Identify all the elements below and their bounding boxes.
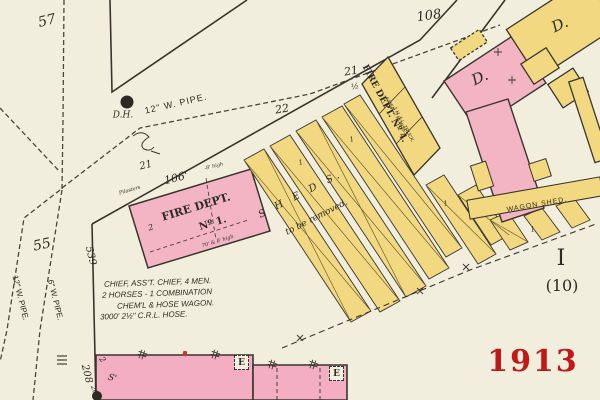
shed-story-mark: 1 — [530, 226, 536, 234]
street-number-21-sheds: 21 — [343, 64, 359, 77]
bottom-building-a — [96, 355, 253, 400]
valve-tick — [151, 151, 160, 154]
hydrant-dot — [121, 96, 134, 109]
block-number: (10) — [546, 278, 579, 294]
annex-strip — [569, 77, 600, 162]
street-number-22: 22 — [274, 102, 290, 115]
street-number-55: 55 — [32, 236, 52, 253]
block-roman: I — [557, 248, 566, 270]
hydrant-label: D.H. — [113, 112, 133, 121]
street-number-57: 57 — [37, 12, 58, 30]
shutter-e-label: E — [333, 369, 340, 379]
pipe-hash — [57, 356, 67, 364]
pipe-12in-south — [0, 190, 60, 362]
street-number-108: 108 — [416, 8, 442, 24]
map-year: 1913 — [487, 347, 579, 377]
sanborn-map-1913: 57 108 D.H. 12" W. PIPE. 21 106' Pilaste… — [0, 0, 600, 400]
pipe-branch-nw — [0, 108, 60, 172]
valve-symbol — [133, 133, 154, 150]
shutter-e-label: E — [238, 358, 245, 368]
fire-dept-1-building — [129, 169, 270, 268]
top-block-corner — [110, 0, 247, 92]
street-number-21-half: ½ — [350, 82, 359, 91]
shutter-e-box-2: E — [329, 366, 344, 381]
pipe-vertical — [62, 0, 64, 190]
shutter-e-box-1: E — [234, 355, 249, 370]
